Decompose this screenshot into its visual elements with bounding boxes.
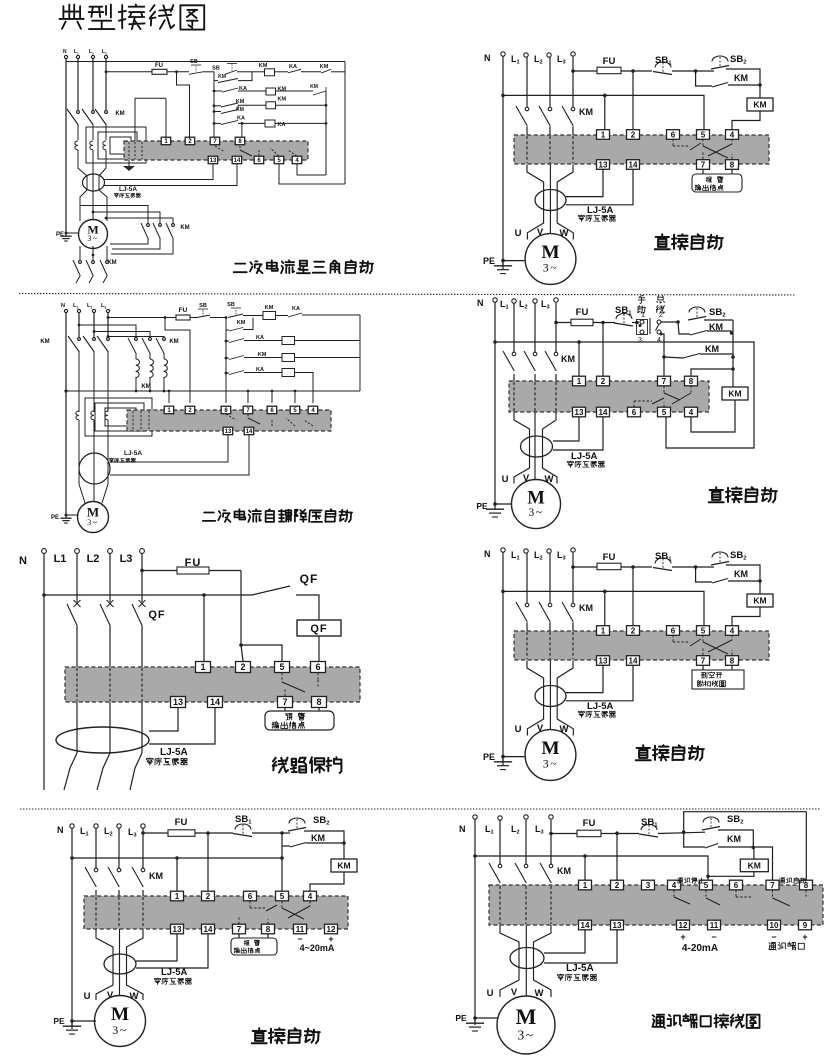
- svg-text:2: 2: [631, 130, 636, 139]
- svg-text:3~: 3~: [517, 1028, 534, 1043]
- svg-text:KA: KA: [237, 116, 245, 122]
- svg-text:LJ-5A: LJ-5A: [566, 963, 594, 974]
- svg-text:8: 8: [266, 925, 271, 934]
- svg-text:6: 6: [315, 662, 320, 672]
- svg-text:3~: 3~: [543, 757, 558, 771]
- svg-text:−: −: [771, 932, 776, 942]
- svg-text:M: M: [527, 487, 545, 508]
- svg-text:7: 7: [701, 656, 706, 665]
- svg-text:13: 13: [210, 158, 217, 164]
- svg-text:KM: KM: [40, 339, 49, 345]
- svg-text:7: 7: [662, 377, 667, 386]
- svg-text:KM: KM: [149, 871, 163, 881]
- svg-text:SB: SB: [212, 66, 220, 72]
- svg-text:KA: KA: [292, 306, 300, 312]
- svg-text:4: 4: [730, 130, 735, 139]
- svg-text:3: 3: [646, 881, 651, 890]
- svg-text:14: 14: [599, 408, 608, 417]
- svg-text:2: 2: [615, 881, 620, 890]
- svg-text:4: 4: [657, 337, 661, 344]
- svg-text:KM: KM: [727, 834, 741, 844]
- svg-text:3~: 3~: [87, 234, 98, 243]
- svg-text:N: N: [484, 549, 491, 559]
- svg-text:3~: 3~: [529, 507, 544, 519]
- svg-text:KM: KM: [311, 833, 325, 843]
- svg-text:6: 6: [671, 626, 676, 635]
- svg-text:PE: PE: [483, 256, 495, 266]
- svg-text:QF: QF: [310, 623, 327, 635]
- svg-text:U: U: [487, 988, 494, 999]
- svg-text:8: 8: [730, 160, 735, 169]
- svg-text:LJ-5A: LJ-5A: [571, 451, 598, 462]
- svg-text:3: 3: [638, 337, 642, 344]
- svg-text:KM: KM: [236, 99, 245, 105]
- svg-text:LJ-5A: LJ-5A: [160, 747, 188, 758]
- svg-text:5: 5: [701, 130, 706, 139]
- svg-text:1: 1: [601, 130, 606, 139]
- svg-text:14: 14: [210, 697, 220, 707]
- svg-text:KM: KM: [320, 64, 329, 70]
- svg-text:3~: 3~: [87, 517, 99, 527]
- svg-text:U: U: [502, 474, 509, 485]
- svg-text:N: N: [484, 53, 491, 63]
- svg-text:14: 14: [629, 656, 638, 665]
- svg-text:KM: KM: [236, 107, 244, 113]
- svg-text:FU: FU: [576, 307, 589, 318]
- svg-text:KM: KM: [728, 389, 741, 399]
- svg-text:13: 13: [173, 697, 183, 707]
- svg-text:1: 1: [200, 662, 205, 672]
- svg-text:KM: KM: [705, 344, 719, 354]
- svg-text:KM: KM: [310, 84, 318, 90]
- svg-text:1: 1: [583, 881, 588, 890]
- svg-text:2: 2: [206, 892, 211, 901]
- svg-text:PE: PE: [483, 752, 495, 762]
- svg-text:6: 6: [632, 408, 637, 417]
- svg-text:8: 8: [804, 881, 809, 890]
- svg-text:KA: KA: [289, 64, 297, 70]
- svg-text:4: 4: [730, 626, 735, 635]
- svg-text:KM: KM: [579, 603, 593, 613]
- svg-text:13: 13: [599, 160, 608, 169]
- svg-text:1: 1: [601, 626, 606, 635]
- svg-text:9: 9: [803, 921, 808, 930]
- svg-text:3~: 3~: [543, 261, 558, 275]
- svg-text:PE: PE: [56, 232, 64, 238]
- svg-text:2: 2: [240, 662, 245, 672]
- svg-text:2: 2: [659, 312, 663, 319]
- svg-text:8: 8: [689, 377, 694, 386]
- svg-text:FU: FU: [155, 63, 163, 69]
- svg-text:7: 7: [770, 881, 775, 890]
- svg-text:12: 12: [327, 925, 336, 934]
- svg-text:5: 5: [704, 881, 709, 890]
- svg-text:U: U: [84, 991, 91, 1002]
- svg-text:SB: SB: [199, 303, 207, 309]
- svg-text:4: 4: [308, 892, 313, 901]
- svg-text:SB: SB: [190, 59, 198, 65]
- svg-text:U: U: [515, 228, 522, 239]
- svg-text:N: N: [61, 303, 65, 309]
- svg-text:LJ-5A: LJ-5A: [119, 186, 137, 193]
- svg-text:6: 6: [734, 881, 739, 890]
- svg-text:QF: QF: [148, 609, 165, 621]
- svg-text:L3: L3: [120, 553, 133, 565]
- svg-text:SB: SB: [227, 302, 235, 308]
- svg-text:8: 8: [316, 697, 321, 707]
- svg-text:4-20mA: 4-20mA: [682, 943, 718, 954]
- svg-text:KM: KM: [169, 339, 178, 345]
- svg-text:8: 8: [730, 656, 735, 665]
- svg-text:L2: L2: [87, 553, 100, 565]
- svg-text:KM: KM: [237, 320, 246, 326]
- svg-text:N: N: [19, 555, 27, 567]
- svg-text:4: 4: [672, 881, 677, 890]
- svg-text:4: 4: [689, 408, 694, 417]
- svg-text:FU: FU: [179, 307, 188, 314]
- svg-text:14: 14: [246, 429, 253, 435]
- svg-text:10: 10: [770, 921, 779, 930]
- svg-text:N: N: [477, 298, 484, 308]
- svg-text:+: +: [680, 932, 685, 942]
- svg-text:FU: FU: [175, 817, 188, 828]
- svg-text:KM: KM: [709, 322, 723, 332]
- svg-text:KM: KM: [265, 305, 274, 311]
- svg-text:KM: KM: [180, 225, 189, 231]
- svg-text:KM: KM: [579, 107, 593, 117]
- svg-text:PE: PE: [455, 1013, 467, 1023]
- svg-text:FU: FU: [185, 557, 202, 569]
- svg-text:6: 6: [671, 130, 676, 139]
- svg-text:KM: KM: [278, 97, 287, 103]
- svg-text:14: 14: [204, 925, 213, 934]
- svg-text:KM: KM: [115, 111, 124, 117]
- svg-text:KM: KM: [107, 260, 116, 266]
- svg-text:14: 14: [581, 921, 590, 930]
- svg-text:KM: KM: [753, 100, 766, 110]
- svg-text:3~: 3~: [112, 1023, 127, 1037]
- svg-text:−: −: [711, 932, 716, 942]
- svg-text:FU: FU: [603, 552, 616, 563]
- svg-text:FU: FU: [583, 818, 596, 829]
- svg-text:13: 13: [575, 408, 584, 417]
- svg-text:11: 11: [710, 921, 719, 930]
- svg-text:6: 6: [248, 892, 253, 901]
- svg-text:L1: L1: [54, 553, 67, 565]
- svg-text:7: 7: [237, 925, 242, 934]
- svg-text:13: 13: [599, 656, 608, 665]
- svg-text:U: U: [515, 724, 522, 735]
- svg-text:KM: KM: [561, 354, 575, 364]
- svg-text:N: N: [63, 49, 67, 55]
- svg-text:KM: KM: [337, 861, 350, 871]
- svg-text:13: 13: [225, 429, 232, 435]
- svg-text:4~20mA: 4~20mA: [300, 943, 335, 953]
- svg-text:KM: KM: [259, 63, 268, 69]
- svg-text:V: V: [511, 987, 518, 998]
- svg-text:KM: KM: [734, 73, 748, 83]
- svg-text:PE: PE: [53, 1016, 65, 1026]
- svg-text:5: 5: [279, 662, 284, 672]
- svg-text:LJ-5A: LJ-5A: [161, 967, 188, 978]
- svg-text:FU: FU: [603, 56, 616, 67]
- svg-text:PE: PE: [51, 515, 59, 521]
- svg-text:QF: QF: [300, 572, 319, 586]
- svg-text:KM: KM: [218, 74, 226, 80]
- svg-text:5: 5: [701, 626, 706, 635]
- svg-text:KM: KM: [734, 569, 748, 579]
- svg-text:2: 2: [631, 626, 636, 635]
- svg-text:KM: KM: [753, 596, 766, 606]
- svg-text:N: N: [57, 825, 64, 835]
- svg-text:13: 13: [613, 921, 622, 930]
- svg-text:KM: KM: [278, 87, 287, 93]
- svg-text:5: 5: [662, 408, 667, 417]
- svg-text:13: 13: [173, 925, 182, 934]
- svg-text:KM: KM: [141, 384, 150, 390]
- svg-text:1: 1: [175, 892, 180, 901]
- svg-text:5: 5: [280, 892, 285, 901]
- svg-text:N: N: [459, 824, 466, 834]
- svg-text:LJ-5A: LJ-5A: [587, 205, 614, 216]
- svg-text:+: +: [802, 932, 807, 942]
- svg-text:7: 7: [282, 697, 287, 707]
- svg-text:LJ-5A: LJ-5A: [587, 701, 614, 712]
- svg-text:KM: KM: [557, 866, 571, 876]
- svg-text:M: M: [516, 1004, 537, 1029]
- svg-text:KM: KM: [748, 861, 761, 871]
- svg-text:7: 7: [701, 160, 706, 169]
- svg-text:1: 1: [641, 312, 645, 319]
- svg-text:11: 11: [296, 925, 305, 934]
- svg-text:12: 12: [679, 921, 688, 930]
- svg-text:1: 1: [577, 377, 582, 386]
- svg-text:2: 2: [601, 377, 606, 386]
- svg-text:14: 14: [234, 158, 241, 164]
- svg-text:14: 14: [629, 160, 638, 169]
- svg-text:LJ-5A: LJ-5A: [124, 450, 142, 457]
